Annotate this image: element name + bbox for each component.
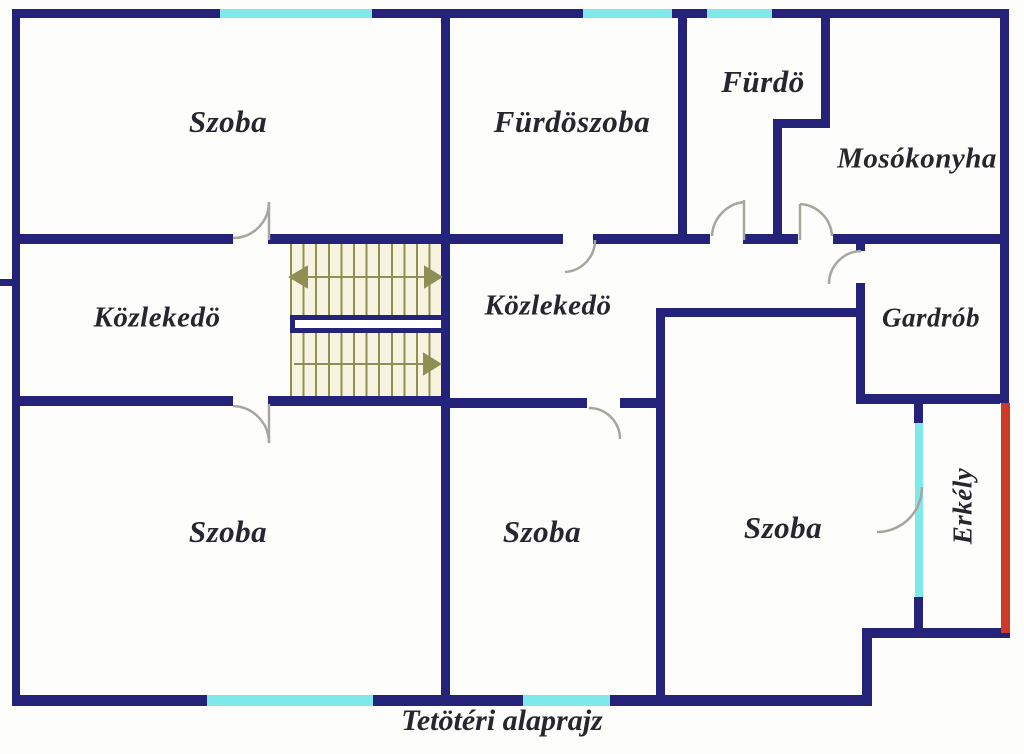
room-label-szoba-bottom-left: Szoba: [189, 514, 267, 550]
door-arc: [877, 487, 922, 532]
room-label-kozlekedo-left: Közlekedö: [94, 302, 221, 335]
room-label-szoba-top-left: Szoba: [189, 104, 267, 140]
room-label-kozlekedo-center: Közlekedö: [485, 290, 612, 323]
room-label-szoba-bottom-middle: Szoba: [503, 514, 581, 550]
stair-arrow-right-icon: [424, 354, 440, 374]
door-arc: [829, 251, 861, 284]
stair-arrow-left-icon: [290, 267, 307, 287]
door-arc: [565, 240, 595, 272]
stair-arrow-right-icon: [425, 267, 441, 287]
door-arc: [233, 202, 269, 238]
room-label-mosokonyha: Mosókonyha: [837, 143, 997, 176]
plan-title: Tetötéri alaprajz: [401, 704, 602, 738]
door-arc: [800, 204, 832, 236]
room-label-erkely: Erkély: [948, 468, 979, 545]
door-arc: [589, 408, 620, 439]
room-label-furdo: Fürdö: [721, 64, 804, 100]
floor-plan: Szoba Fürdöszoba Fürdö Mosókonyha Közlek…: [0, 0, 1024, 754]
room-label-furdoszoba: Fürdöszoba: [494, 104, 651, 140]
room-label-szoba-bottom-right: Szoba: [744, 510, 822, 546]
door-arc: [712, 202, 744, 236]
door-arc: [233, 406, 269, 443]
room-label-gardrob: Gardrób: [882, 303, 980, 334]
